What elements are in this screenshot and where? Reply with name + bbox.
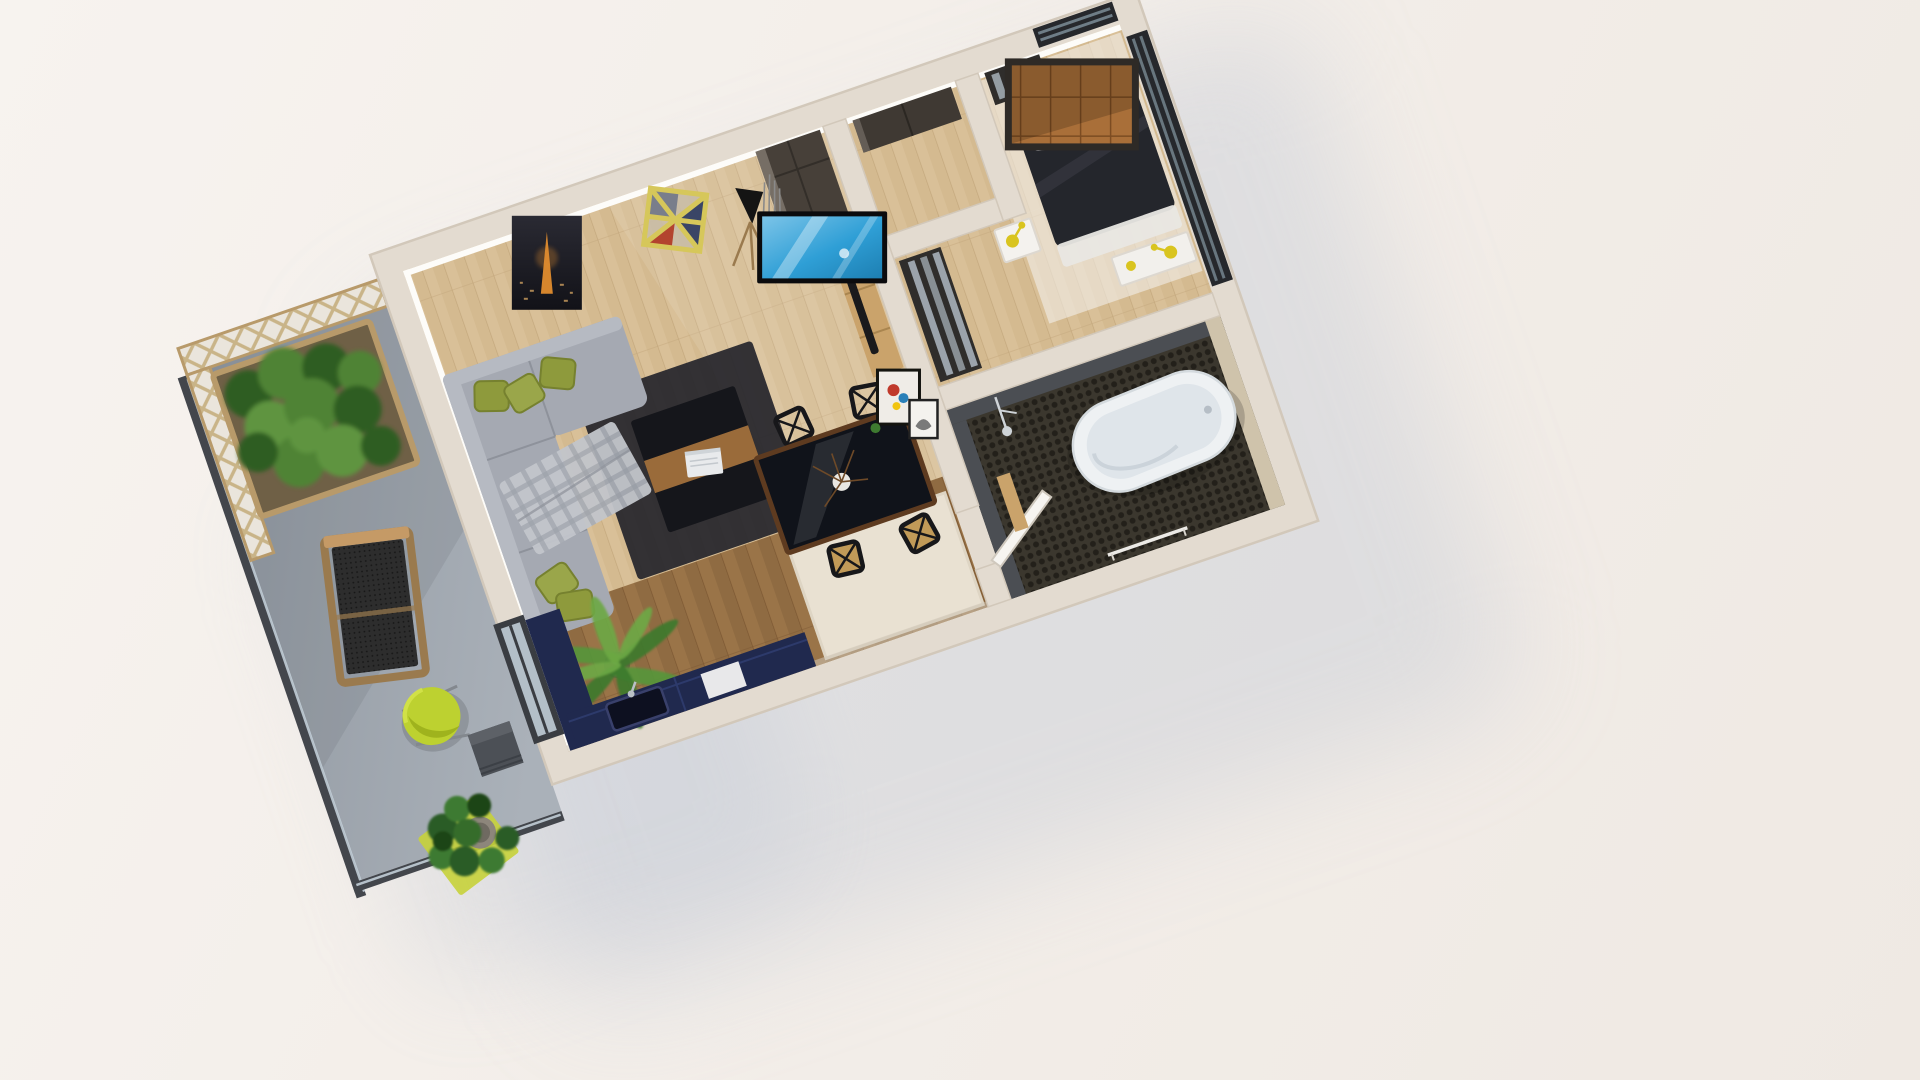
wall-tv (757, 211, 887, 283)
eiffel-night-poster (512, 216, 582, 310)
floorplan-rotated-wrap (137, 0, 1405, 976)
dining-chair (828, 541, 864, 577)
small-plant (870, 423, 880, 433)
leather-panel-headboard (1005, 58, 1139, 150)
floorplan-svg (137, 0, 1405, 976)
apartment-3d-floorplan (0, 0, 1920, 1080)
wooden-lounge-chair (323, 526, 426, 683)
laptop (685, 447, 724, 477)
